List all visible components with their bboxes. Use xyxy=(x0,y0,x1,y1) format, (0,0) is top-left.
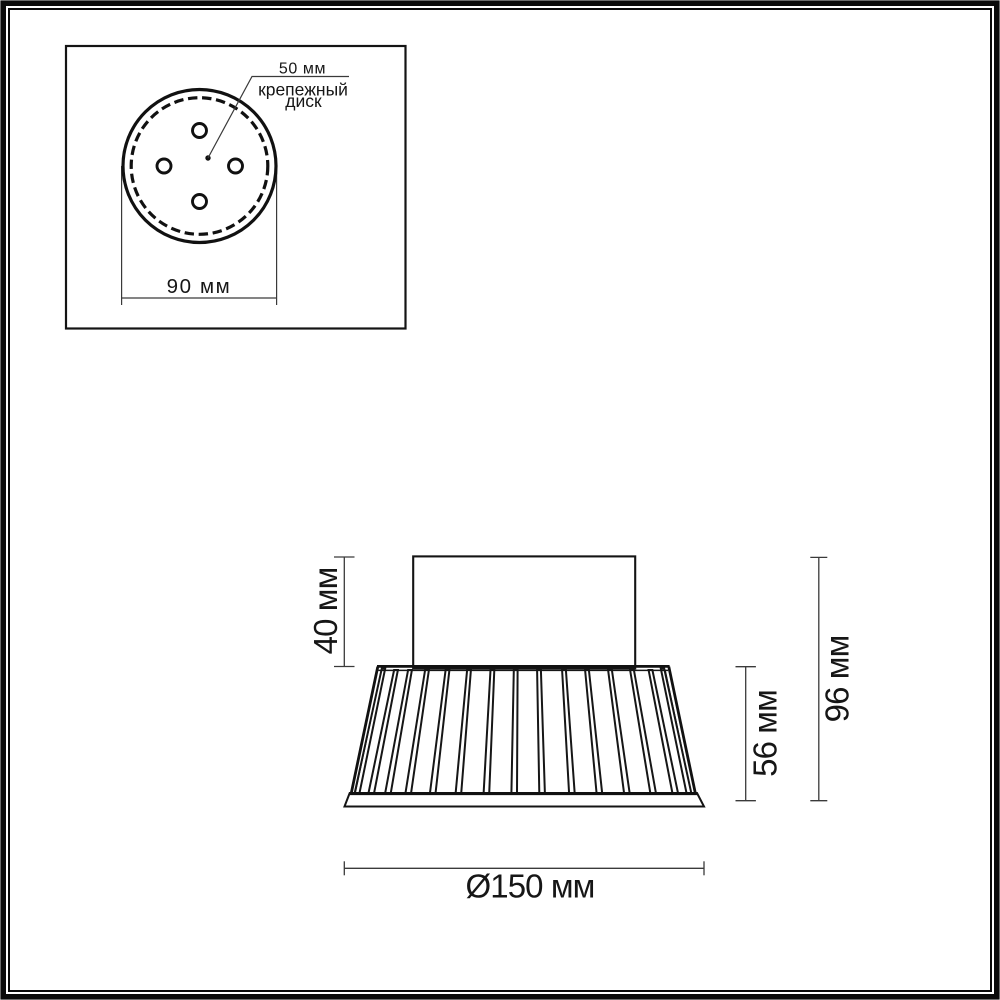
svg-text:56 мм: 56 мм xyxy=(747,690,784,777)
svg-text:40 мм: 40 мм xyxy=(307,568,344,655)
svg-text:Ø150 мм: Ø150 мм xyxy=(466,868,595,905)
svg-text:50 мм: 50 мм xyxy=(279,61,326,78)
svg-text:диск: диск xyxy=(285,91,322,111)
svg-text:90 мм: 90 мм xyxy=(167,275,232,298)
svg-text:96 мм: 96 мм xyxy=(819,636,856,723)
